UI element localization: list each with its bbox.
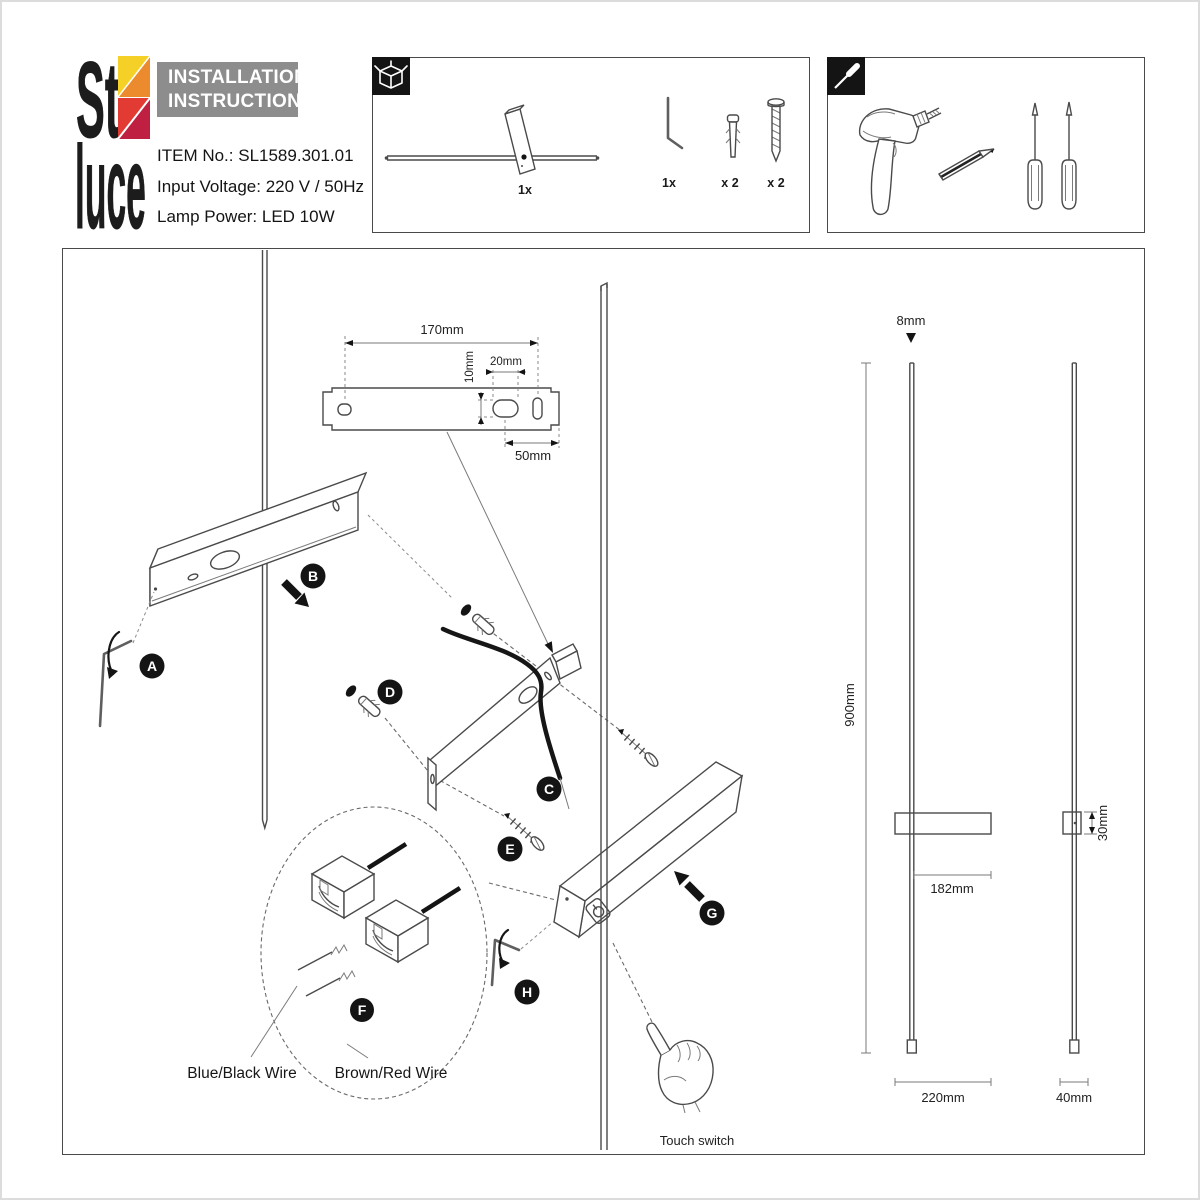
dim-8-label: 8mm [897, 313, 926, 328]
dim-900-label: 900mm [842, 683, 857, 726]
step-a-group: A [100, 592, 165, 726]
item-info: ITEM No.: SL1589.301.01 Input Voltage: 2… [157, 141, 364, 233]
side-view-rod [1070, 363, 1079, 1053]
step-a-label: A [147, 658, 157, 674]
phillips-screwdriver-drawing [1028, 103, 1042, 209]
step-g-label: G [707, 905, 718, 921]
screw-qty-label: x 2 [767, 176, 784, 190]
package-contents: 1x 1x x 2 x 2 [372, 57, 808, 231]
lamp-power: Lamp Power: LED 10W [157, 202, 364, 233]
page-title: INSTALLATION INSTRUCTIONS [157, 62, 298, 117]
step-e-label: E [505, 841, 514, 857]
flat-screwdriver-drawing [1062, 102, 1076, 209]
lamp-drawing [385, 105, 600, 174]
wall-plug-drawing [726, 115, 740, 157]
hand-touch-drawing: Touch switch [613, 943, 734, 1148]
instruction-sheet: St luce INSTALLATION INSTRUCTIONS ITEM N… [0, 0, 1200, 1200]
stripped-wire-2 [306, 971, 355, 996]
title-line-1: INSTALLATION [168, 66, 298, 90]
lamp-qty-label: 1x [518, 183, 532, 197]
wall-plug-1 [468, 610, 498, 639]
package-icon [372, 57, 410, 95]
dim-10-label: 10mm [464, 351, 476, 383]
mounting-screw-2 [618, 729, 660, 768]
wire-right-label: Brown/Red Wire [335, 1065, 448, 1082]
logo-text-luce: luce [75, 122, 146, 240]
title-line-2: INSTRUCTIONS [168, 90, 298, 114]
step-c-label: C [544, 781, 554, 797]
touch-switch-label: Touch switch [660, 1133, 734, 1148]
stripped-wire-1 [298, 945, 347, 970]
step-f-label: F [358, 1002, 367, 1018]
front-view-rod [907, 363, 916, 1053]
step-d-label: D [385, 684, 395, 700]
dim-220-label: 220mm [921, 1090, 964, 1105]
brand-logo: St luce [70, 50, 160, 240]
screw-drawing [768, 99, 784, 161]
dim-170-label: 170mm [420, 322, 463, 337]
wall-plug-qty-label: x 2 [721, 176, 738, 190]
wire-left-label: Blue/Black Wire [187, 1065, 296, 1082]
dimension-views: 900mm 8mm 182mm [842, 313, 1110, 1105]
allen-key-drawing [668, 98, 682, 148]
tools-needed [827, 57, 1143, 231]
step-b-label: B [308, 568, 318, 584]
item-number: ITEM No.: SL1589.301.01 [157, 141, 364, 172]
step-h-group: H [492, 921, 554, 1005]
dim-182-label: 182mm [930, 881, 973, 896]
dim-20-label: 20mm [490, 356, 522, 368]
dim-50-label: 50mm [515, 448, 551, 463]
input-voltage: Input Voltage: 220 V / 50Hz [157, 172, 364, 203]
bracket-assembly: D C E [344, 602, 660, 861]
screwdriver-icon [827, 57, 865, 95]
main-diagram: A B 170mm 20mm [62, 248, 1143, 1153]
dim-30-label: 30mm [1095, 805, 1110, 841]
step-h-label: H [522, 984, 532, 1000]
step-g-group: G [674, 871, 725, 926]
dim-40-label: 40mm [1056, 1090, 1092, 1105]
lamp-body-exploded [150, 473, 366, 606]
allen-key-qty-label: 1x [662, 176, 676, 190]
drill-drawing [860, 108, 941, 214]
pencil-drawing [939, 149, 994, 180]
terminal-block-2 [366, 888, 460, 962]
